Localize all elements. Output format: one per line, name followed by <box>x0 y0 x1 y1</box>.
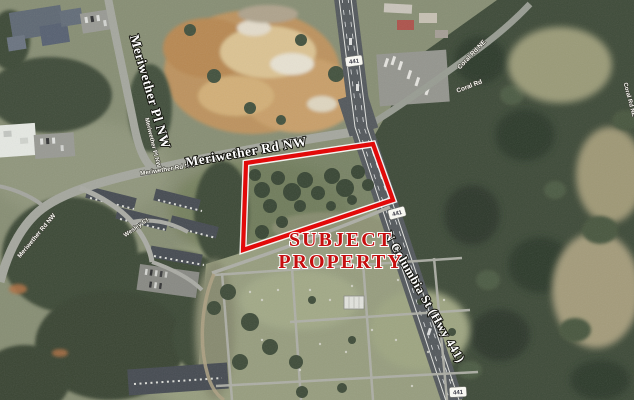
shield-441-south-text: 441 <box>453 390 464 397</box>
aerial-satellite-map: 441 441 441 Meriwether Rd NW Meriwether … <box>0 0 634 400</box>
subject-property-label-line1: SUBJECT <box>289 229 393 251</box>
map-canvas: 441 441 441 Meriwether Rd NW Meriwether … <box>0 0 634 400</box>
atmosphere-tint <box>0 0 634 400</box>
route-shield-441-south: 441 <box>449 387 467 398</box>
route-shield-441-north: 441 <box>345 55 363 67</box>
subject-property-label-line2: PROPERTY <box>278 251 403 273</box>
